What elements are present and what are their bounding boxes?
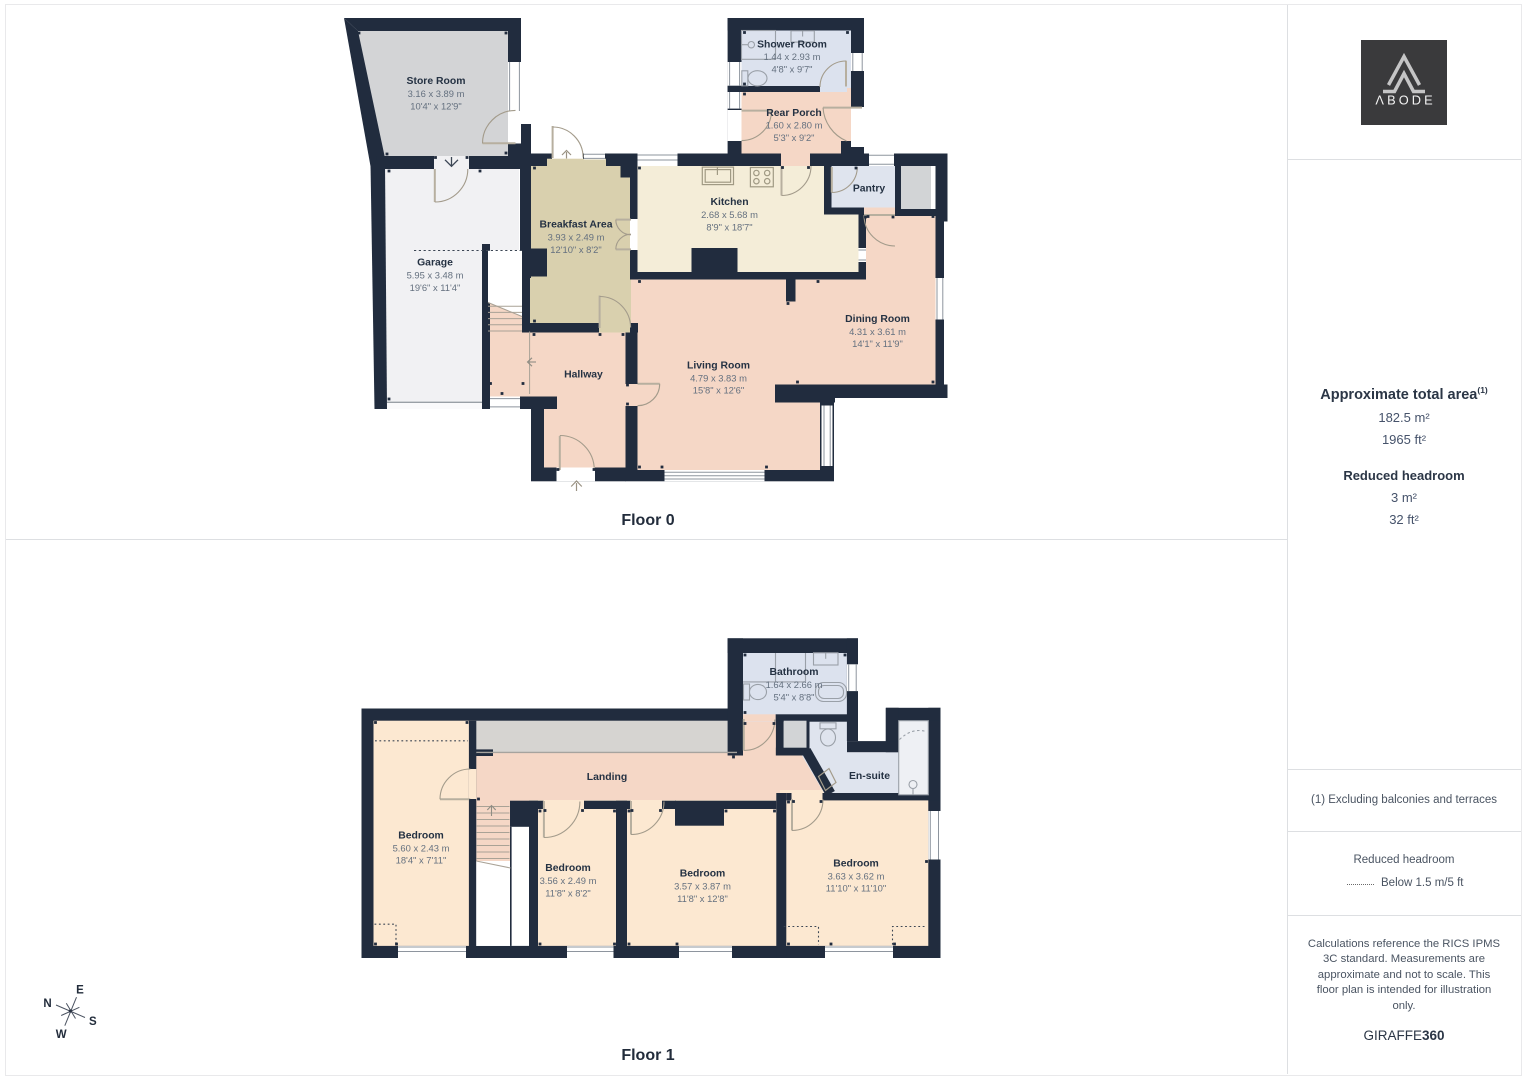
svg-text:Pantry: Pantry — [853, 184, 886, 195]
svg-text:1.64 x 2.66 m: 1.64 x 2.66 m — [766, 679, 823, 690]
svg-text:12'10" x 8'2": 12'10" x 8'2" — [550, 244, 601, 255]
svg-text:3.57 x 3.87 m: 3.57 x 3.87 m — [674, 881, 731, 892]
svg-text:15'8" x 12'6": 15'8" x 12'6" — [693, 385, 744, 396]
svg-text:18'4" x 7'11": 18'4" x 7'11" — [396, 855, 447, 866]
svg-text:Store Room: Store Room — [407, 76, 466, 87]
svg-text:3.93 x 2.49 m: 3.93 x 2.49 m — [548, 232, 605, 243]
svg-text:Bathroom: Bathroom — [769, 667, 818, 678]
svg-text:8'9" x 18'7": 8'9" x 18'7" — [706, 221, 752, 232]
svg-text:Breakfast Area: Breakfast Area — [540, 220, 613, 231]
svg-text:4.79 x 3.83 m: 4.79 x 3.83 m — [690, 372, 747, 383]
svg-text:5.95 x 3.48 m: 5.95 x 3.48 m — [407, 270, 464, 281]
svg-text:Bedroom: Bedroom — [545, 863, 591, 874]
svg-text:14'1" x 11'9": 14'1" x 11'9" — [852, 338, 903, 349]
svg-text:Bedroom: Bedroom — [833, 859, 879, 870]
svg-text:19'6" x 11'4": 19'6" x 11'4" — [410, 282, 461, 293]
svg-text:Bedroom: Bedroom — [680, 869, 726, 880]
svg-text:E: E — [76, 985, 84, 997]
svg-text:Garage: Garage — [417, 258, 453, 269]
svg-text:W: W — [56, 1029, 67, 1041]
svg-text:Shower Room: Shower Room — [757, 40, 827, 51]
svg-text:4.31 x 3.61 m: 4.31 x 3.61 m — [849, 326, 906, 337]
svg-text:3.63 x 3.62 m: 3.63 x 3.62 m — [828, 870, 885, 881]
svg-text:En-suite: En-suite — [849, 771, 890, 782]
svg-text:3.16 x 3.89 m: 3.16 x 3.89 m — [408, 88, 465, 99]
svg-text:3.56 x 2.49 m: 3.56 x 2.49 m — [540, 875, 597, 886]
svg-text:1.60 x 2.80 m: 1.60 x 2.80 m — [766, 120, 823, 131]
svg-text:11'8" x 8'2": 11'8" x 8'2" — [545, 887, 591, 898]
svg-text:2.68 x 5.68 m: 2.68 x 5.68 m — [701, 209, 758, 220]
svg-text:Hallway: Hallway — [564, 370, 603, 381]
svg-text:N: N — [43, 998, 51, 1010]
svg-text:4'8" x 9'7": 4'8" x 9'7" — [772, 63, 813, 74]
svg-text:Bedroom: Bedroom — [398, 831, 444, 842]
svg-text:Landing: Landing — [587, 772, 627, 783]
svg-text:5.60 x 2.43 m: 5.60 x 2.43 m — [393, 842, 450, 853]
svg-text:1.44 x 2.93 m: 1.44 x 2.93 m — [764, 51, 821, 62]
svg-text:11'10" x 11'10": 11'10" x 11'10" — [826, 883, 886, 894]
svg-text:5'3" x 9'2": 5'3" x 9'2" — [774, 132, 815, 143]
svg-text:11'8" x 12'8": 11'8" x 12'8" — [677, 893, 728, 904]
svg-text:Kitchen: Kitchen — [710, 197, 748, 208]
svg-text:Rear Porch: Rear Porch — [766, 108, 821, 119]
svg-text:10'4" x 12'9": 10'4" x 12'9" — [410, 101, 461, 112]
svg-text:5'4" x 8'8": 5'4" x 8'8" — [774, 691, 815, 702]
svg-text:S: S — [89, 1016, 97, 1028]
svg-text:Living Room: Living Room — [687, 361, 750, 372]
svg-text:Dining Room: Dining Room — [845, 314, 910, 325]
